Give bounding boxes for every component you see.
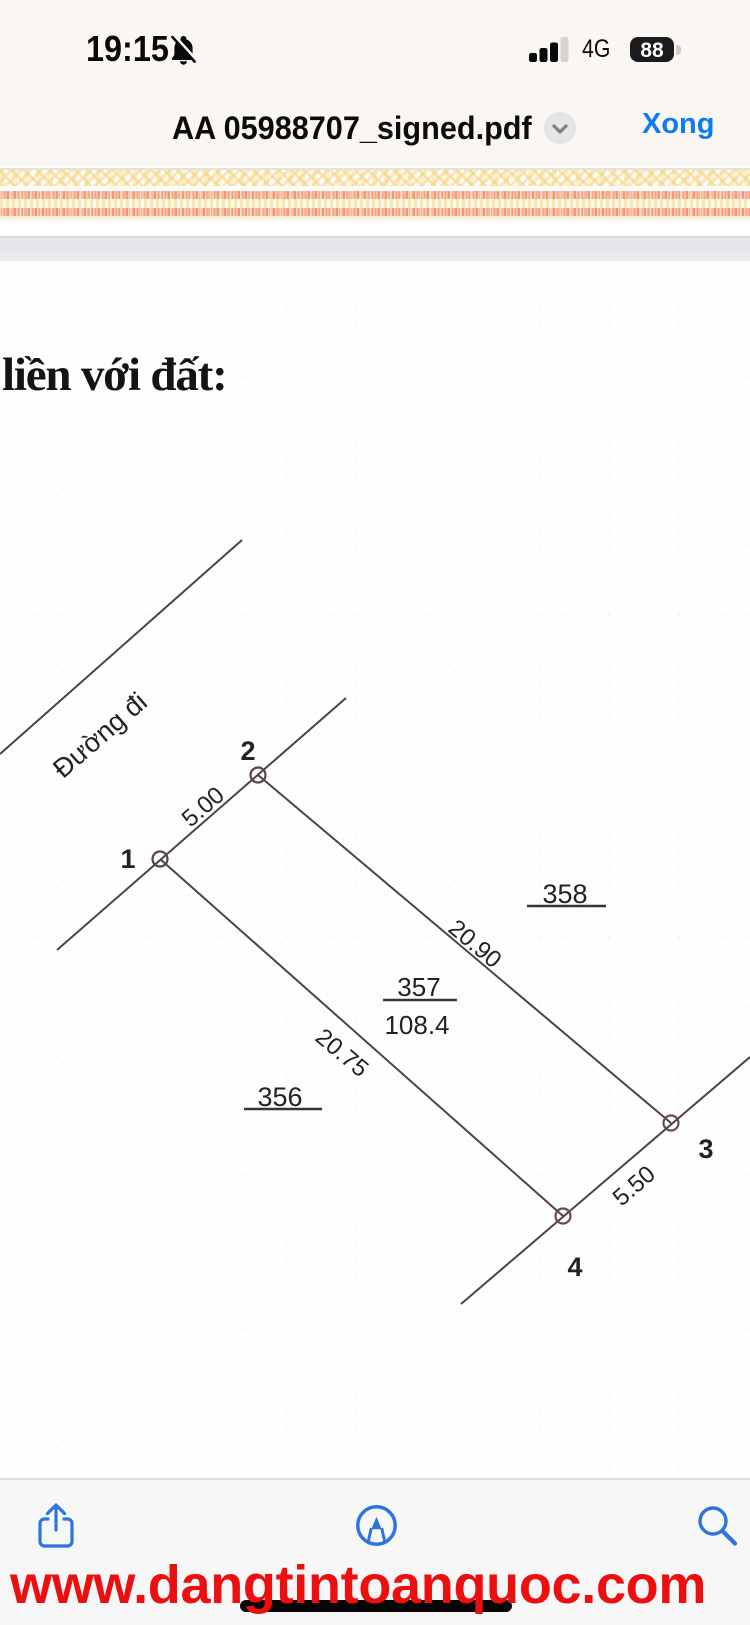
svg-text:20.75: 20.75	[310, 1023, 373, 1082]
svg-text:20.90: 20.90	[443, 914, 506, 973]
svg-text:358: 358	[542, 879, 587, 909]
svg-text:3: 3	[698, 1134, 713, 1164]
svg-text:5.50: 5.50	[608, 1161, 661, 1212]
svg-text:4: 4	[567, 1252, 582, 1282]
svg-text:1: 1	[120, 844, 135, 874]
svg-text:2: 2	[240, 736, 255, 766]
svg-text:5.00: 5.00	[177, 782, 230, 833]
svg-text:Đường đi: Đường đi	[47, 687, 153, 784]
svg-text:108.4: 108.4	[384, 1010, 449, 1040]
svg-text:356: 356	[257, 1082, 302, 1112]
svg-text:357: 357	[397, 972, 440, 1002]
